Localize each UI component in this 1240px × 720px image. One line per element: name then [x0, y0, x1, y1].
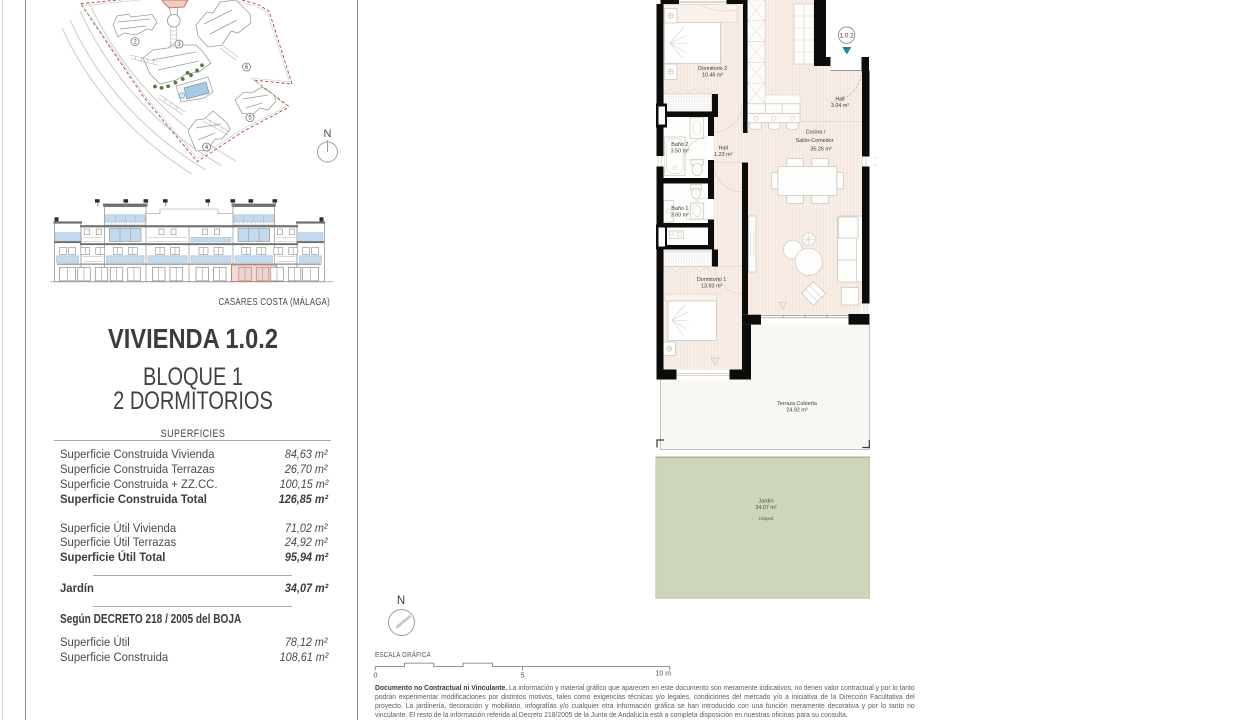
svg-text:Dormitorio 1: Dormitorio 1	[697, 277, 726, 283]
svg-text:Dormitorio 2: Dormitorio 2	[698, 66, 727, 72]
svg-text:N: N	[324, 128, 332, 140]
svg-text:10 m: 10 m	[656, 671, 672, 678]
svg-text:3.50 m²: 3.50 m²	[671, 148, 689, 154]
svg-text:5: 5	[521, 673, 525, 680]
svg-text:13.93 m²: 13.93 m²	[701, 284, 722, 290]
svg-text:Baño 1: Baño 1	[671, 206, 688, 212]
svg-text:1.23 m²: 1.23 m²	[714, 152, 732, 158]
svg-text:24.92 m²: 24.92 m²	[786, 408, 807, 414]
svg-text:Jardín: Jardín	[759, 499, 774, 505]
svg-text:Salón-Comedor: Salón-Comedor	[796, 138, 834, 144]
svg-text:Hall: Hall	[835, 97, 844, 103]
svg-text:34.07 m²: 34.07 m²	[755, 505, 776, 511]
svg-text:Hall: Hall	[719, 146, 728, 152]
svg-text:1.0.2: 1.0.2	[839, 33, 854, 40]
svg-text:0: 0	[374, 673, 378, 680]
svg-text:10.46 m²: 10.46 m²	[702, 73, 723, 79]
svg-text:Baño 2: Baño 2	[671, 142, 688, 148]
svg-text:N: N	[397, 595, 405, 607]
svg-text:Terraza Cubierta: Terraza Cubierta	[777, 401, 817, 407]
svg-text:Cocina /: Cocina /	[806, 130, 826, 136]
svg-text:35.26 m²: 35.26 m²	[810, 146, 831, 152]
svg-text:3.04 m²: 3.04 m²	[831, 103, 849, 109]
svg-text:3.60 m²: 3.60 m²	[671, 212, 689, 218]
svg-text:Césped: Césped	[759, 516, 774, 521]
